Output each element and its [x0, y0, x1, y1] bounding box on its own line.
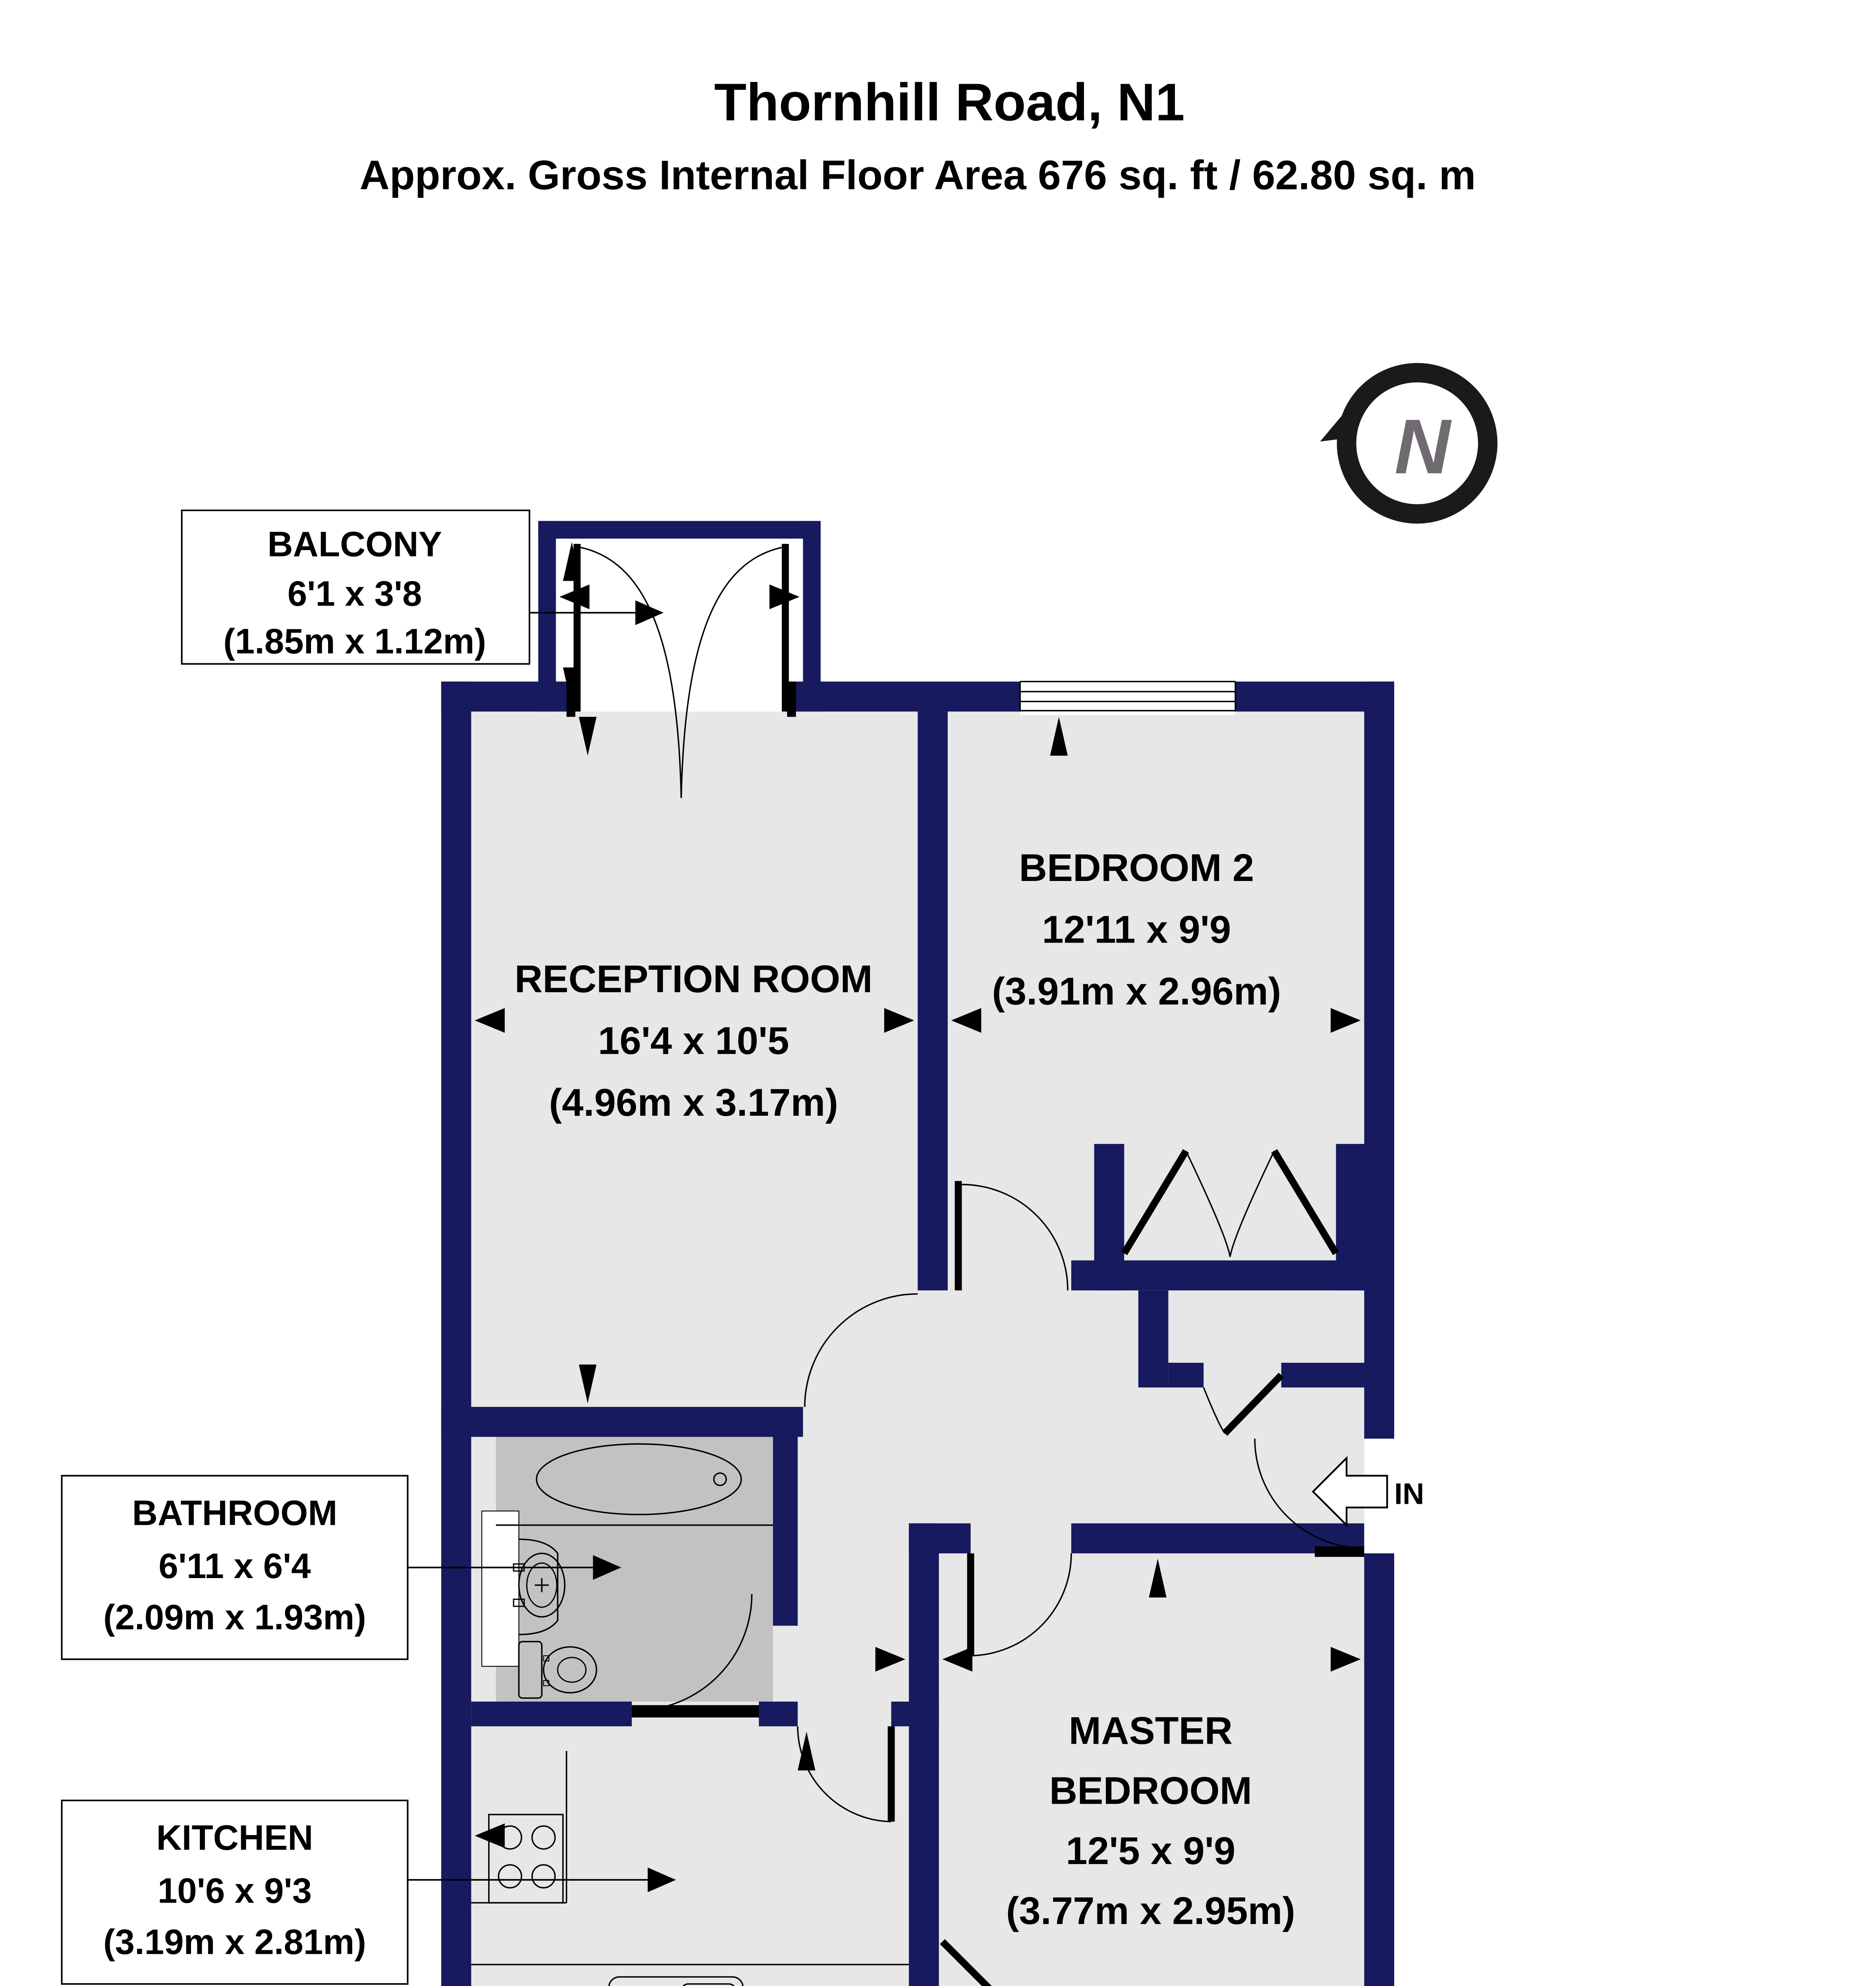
- bedroom2-window: [1020, 673, 1235, 715]
- page-title: Thornhill Road, N1: [714, 73, 1185, 132]
- bathroom-metric: (2.09m x 1.93m): [103, 1598, 366, 1637]
- kitchen-metric: (3.19m x 2.81m): [103, 1922, 366, 1961]
- master-metric: (3.77m x 2.95m): [1006, 1889, 1295, 1932]
- kitchen-imperial: 10'6 x 9'3: [158, 1871, 312, 1911]
- bathroom-imperial: 6'11 x 6'4: [158, 1546, 311, 1586]
- balcony-imperial: 6'1 x 3'8: [288, 574, 422, 613]
- master-imperial: 12'5 x 9'9: [1066, 1829, 1235, 1872]
- master-name-line2: BEDROOM: [1049, 1769, 1252, 1812]
- master-name-line1: MASTER: [1069, 1709, 1233, 1752]
- reception-imperial: 16'4 x 10'5: [598, 1019, 789, 1062]
- north-compass-icon: N: [1320, 373, 1488, 514]
- bathroom-floor: [496, 1432, 773, 1702]
- reception-metric: (4.96m x 3.17m): [549, 1081, 838, 1124]
- bedroom2-name: BEDROOM 2: [1019, 846, 1254, 889]
- entrance-in-text: IN: [1394, 1477, 1424, 1511]
- kitchen-name: KITCHEN: [156, 1818, 313, 1857]
- north-letter: N: [1395, 404, 1452, 490]
- bedroom2-metric: (3.91m x 2.96m): [992, 970, 1281, 1013]
- balcony-name: BALCONY: [267, 524, 442, 564]
- balcony-floor: [556, 539, 803, 711]
- page-subtitle: Approx. Gross Internal Floor Area 676 sq…: [359, 152, 1476, 198]
- bedroom2-imperial: 12'11 x 9'9: [1042, 908, 1231, 951]
- bathroom-recess: [482, 1511, 519, 1666]
- bathroom-name: BATHROOM: [132, 1493, 338, 1533]
- floorplan-page: Thornhill Road, N1 Approx. Gross Interna…: [0, 0, 1876, 1986]
- reception-name: RECEPTION ROOM: [514, 957, 872, 1001]
- balcony-metric: (1.85m x 1.12m): [223, 622, 486, 661]
- floorplan-canvas: Thornhill Road, N1 Approx. Gross Interna…: [0, 0, 1876, 1986]
